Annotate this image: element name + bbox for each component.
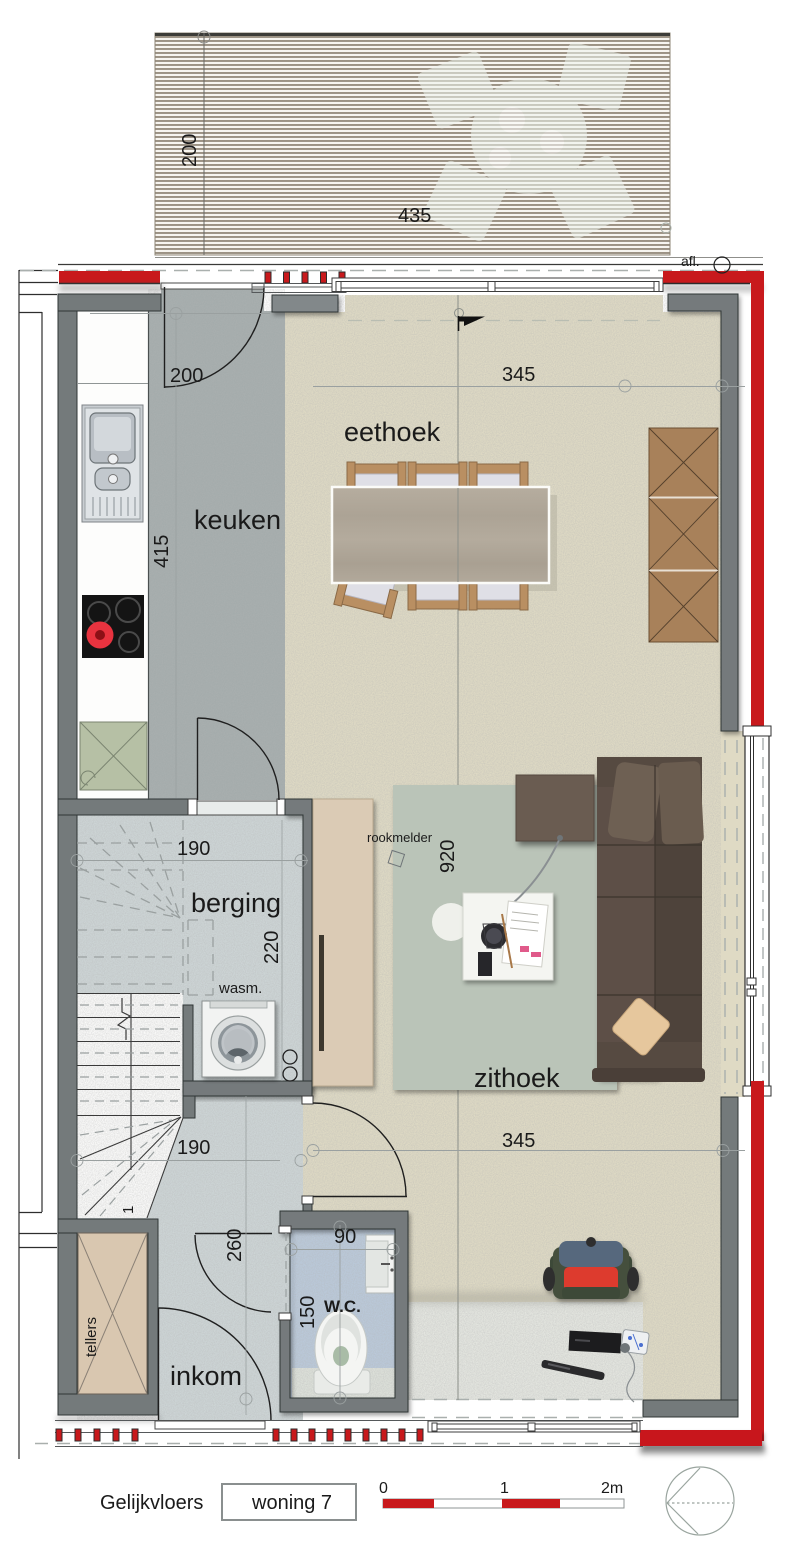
svg-text:200: 200: [179, 134, 201, 167]
svg-text:190: 190: [177, 838, 210, 860]
svg-text:berging: berging: [191, 888, 281, 918]
svg-text:keuken: keuken: [194, 505, 281, 535]
svg-text:woning 7: woning 7: [251, 1492, 332, 1514]
svg-text:435: 435: [398, 205, 431, 227]
svg-text:190: 190: [177, 1137, 210, 1159]
svg-text:200: 200: [170, 365, 203, 387]
svg-text:415: 415: [151, 535, 173, 568]
svg-text:rookmelder: rookmelder: [367, 830, 433, 845]
svg-text:W.C.: W.C.: [324, 1297, 361, 1316]
svg-text:0: 0: [379, 1480, 388, 1497]
svg-text:260: 260: [224, 1229, 246, 1262]
svg-text:1: 1: [120, 1206, 137, 1214]
svg-text:zithoek: zithoek: [474, 1063, 560, 1093]
svg-text:afl.: afl.: [681, 253, 700, 269]
svg-text:wasm.: wasm.: [218, 980, 262, 997]
svg-text:1: 1: [500, 1480, 509, 1497]
svg-text:Gelijkvloers: Gelijkvloers: [100, 1492, 203, 1514]
svg-text:920: 920: [437, 840, 459, 873]
svg-text:220: 220: [261, 931, 283, 964]
svg-text:345: 345: [502, 364, 535, 386]
svg-text:90: 90: [334, 1226, 356, 1248]
svg-text:2m: 2m: [601, 1480, 623, 1497]
svg-text:345: 345: [502, 1130, 535, 1152]
svg-text:eethoek: eethoek: [344, 417, 441, 447]
svg-text:tellers: tellers: [83, 1317, 100, 1357]
svg-text:inkom: inkom: [170, 1361, 242, 1391]
svg-text:150: 150: [297, 1296, 319, 1329]
